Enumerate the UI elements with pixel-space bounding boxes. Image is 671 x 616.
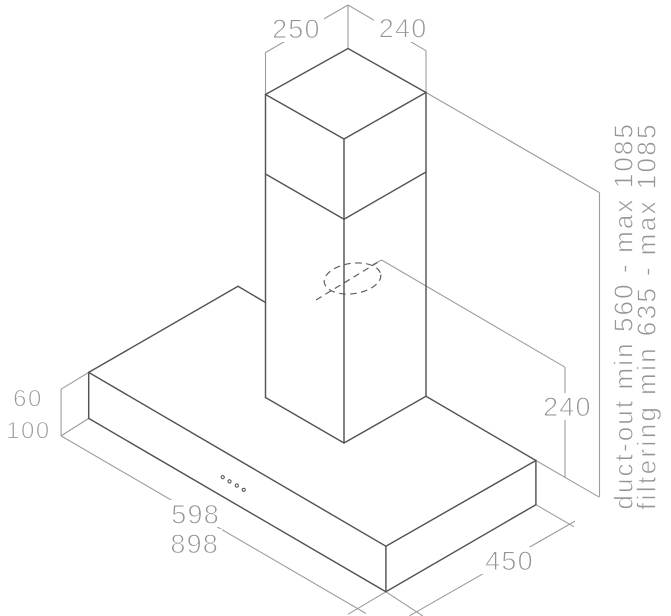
svg-text:450: 450 (485, 546, 534, 576)
svg-text:60: 60 (13, 385, 43, 412)
svg-text:898: 898 (170, 529, 219, 559)
svg-text:filtering min 635 - max 1085: filtering min 635 - max 1085 (632, 122, 662, 510)
svg-text:250: 250 (272, 14, 321, 44)
svg-text:100: 100 (6, 418, 51, 445)
svg-text:240: 240 (379, 14, 428, 44)
svg-text:240: 240 (543, 392, 592, 422)
svg-text:598: 598 (171, 499, 220, 529)
